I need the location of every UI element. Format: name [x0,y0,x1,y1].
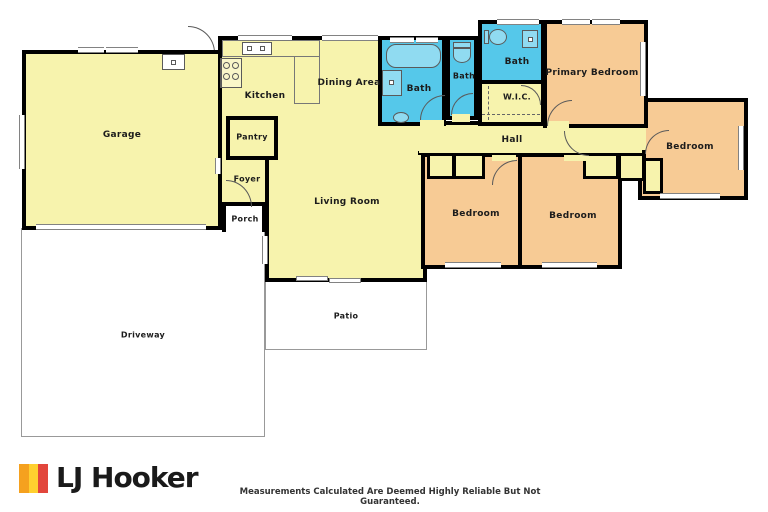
sliding-door [329,278,361,283]
window [562,19,590,25]
label-porch: Porch [231,215,258,224]
window [19,115,25,169]
window [322,35,378,41]
floorplan-page: Garage Kitchen Dining Area Living Room P… [0,0,768,512]
stove-icon [220,58,242,88]
window [215,158,221,174]
logo-stripe-red [38,464,48,493]
toilet-icon [393,112,409,123]
disclaimer-text: Measurements Calculated Are Deemed Highl… [230,487,550,507]
sliding-door [296,276,328,281]
label-foyer: Foyer [234,175,261,184]
window [592,19,620,25]
garage-door [36,224,206,230]
toilet-icon [453,48,471,63]
window [78,47,104,53]
ljhooker-logo-icon [19,464,48,493]
window [542,262,597,268]
label-kitchen: Kitchen [245,91,286,101]
window [445,262,501,268]
closet [453,153,485,179]
wic-shelving [482,114,540,115]
vanity-sink-icon [522,30,538,48]
window [497,19,539,25]
window [416,37,438,43]
label-primary-bedroom: Primary Bedroom [545,68,638,78]
room-garage [22,50,222,230]
label-bath-main: Bath [407,84,432,94]
label-bath-small: Bath [453,72,475,81]
label-pantry: Pantry [236,133,268,142]
vanity-sink-icon [382,70,402,96]
window [738,126,744,170]
closet [583,153,619,179]
kitchen-sink-icon [242,42,272,55]
label-bedroom-east: Bedroom [666,142,714,152]
label-living: Living Room [314,197,380,207]
closet [427,153,455,179]
label-bedroom-south-left: Bedroom [452,209,500,219]
window [660,193,720,199]
bedroom-east-door-gap [636,128,646,150]
label-bath-ensuite: Bath [505,57,530,67]
label-garage: Garage [103,130,141,140]
label-bedroom-south-right: Bedroom [549,211,597,221]
hall-living-opening [419,127,429,153]
door-gap [452,114,470,122]
logo-stripe-orange [19,464,29,493]
door-gap [420,120,444,128]
bathtub-icon [386,44,441,68]
kitchen-counter [294,56,320,104]
connector-opening [612,127,622,155]
laundry-sink-icon [162,54,185,70]
door-gap [564,155,588,161]
closet [643,158,663,194]
toilet-icon [489,29,507,45]
logo-stripe-yellow [29,464,39,493]
window [262,236,268,264]
label-dining: Dining Area [318,78,381,88]
label-driveway: Driveway [121,331,165,340]
window [390,37,414,43]
window [640,42,646,96]
label-wic: W.I.C. [503,93,531,102]
window [106,47,138,53]
label-hall: Hall [502,135,523,145]
exterior-door-arc [188,26,215,53]
label-patio: Patio [334,312,359,321]
closet [618,153,645,181]
brand-name: LJ Hooker [56,461,198,494]
